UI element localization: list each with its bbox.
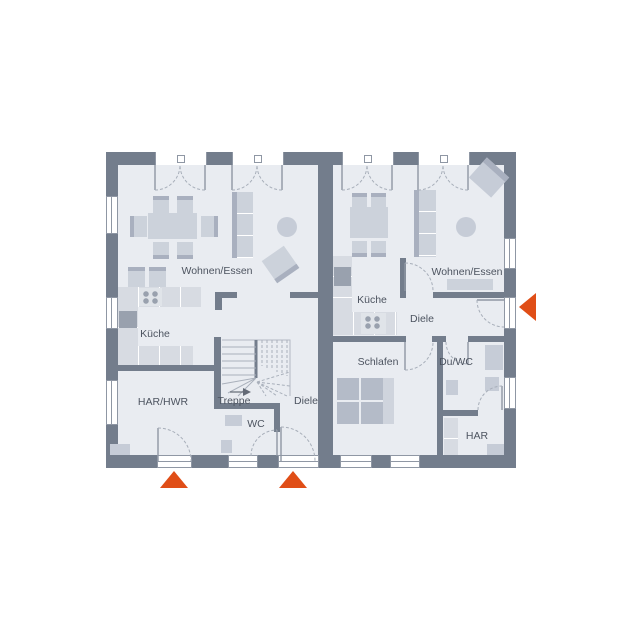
- chair: [371, 193, 386, 209]
- entry-door-opening: [278, 455, 319, 468]
- room-label-right-du-wc: Du/WC: [439, 356, 473, 368]
- interior-wall: [468, 336, 516, 342]
- french-door: [418, 152, 470, 165]
- window: [106, 196, 118, 234]
- stove: [361, 313, 386, 334]
- window: [390, 455, 420, 468]
- toilet: [221, 440, 232, 453]
- interior-wall: [274, 409, 280, 432]
- window: [106, 297, 118, 329]
- cabinet: [487, 444, 504, 455]
- interior-wall: [400, 258, 406, 298]
- stool: [128, 267, 145, 287]
- door-mullion: [440, 155, 448, 163]
- side-table: [277, 217, 297, 237]
- room-label-left-diele: Diele: [294, 395, 318, 407]
- interior-wall: [290, 292, 318, 298]
- entry-door-opening: [157, 455, 192, 468]
- dining-table: [350, 207, 388, 238]
- window: [106, 380, 118, 425]
- chair: [352, 241, 367, 257]
- french-door: [155, 152, 207, 165]
- room-label-right-har: HAR: [466, 430, 488, 442]
- chair: [177, 196, 193, 213]
- chair: [177, 242, 193, 259]
- chair: [201, 216, 218, 237]
- room-label-left-wohnen-essen: Wohnen/Essen: [181, 265, 252, 277]
- bed-foot: [383, 378, 394, 424]
- room-label-right-kueche: Küche: [357, 294, 387, 306]
- floor-plan: Wohnen/Essen Küche HAR/HWR Treppe Diele …: [0, 0, 636, 636]
- entrance-marker: [160, 471, 188, 488]
- kitchen-counter: [118, 346, 193, 365]
- shower: [485, 345, 503, 370]
- room-label-right-wohnen-essen: Wohnen/Essen: [431, 266, 502, 278]
- door-mullion: [364, 155, 372, 163]
- double-bed: [337, 378, 394, 424]
- room-label-left-har-hwr: HAR/HWR: [138, 396, 188, 408]
- chair: [153, 196, 169, 213]
- stove: [139, 288, 162, 306]
- shelf-unit: [414, 190, 436, 257]
- party-wall: [318, 152, 333, 468]
- entrance-marker: [279, 471, 307, 488]
- interior-wall: [333, 336, 406, 342]
- toilet: [446, 380, 458, 395]
- sink: [485, 377, 499, 391]
- door-mullion: [254, 155, 262, 163]
- window: [504, 238, 516, 269]
- room-label-left-treppe: Treppe: [218, 395, 251, 407]
- entry-door-opening: [504, 297, 516, 329]
- oven-appliance: [119, 311, 137, 328]
- shelf-unit: [232, 192, 253, 258]
- room-label-left-kueche: Küche: [140, 328, 170, 340]
- french-door: [232, 152, 284, 165]
- interior-wall: [106, 365, 214, 371]
- oven-appliance: [334, 267, 351, 286]
- french-door: [342, 152, 394, 165]
- door-mullion: [177, 155, 185, 163]
- interior-wall: [215, 292, 222, 310]
- chair: [352, 193, 367, 209]
- sideboard: [447, 279, 493, 290]
- room-label-left-wc: WC: [247, 418, 265, 430]
- chair: [130, 216, 147, 237]
- interior-wall: [443, 410, 478, 416]
- utility-appliance: [110, 444, 130, 455]
- cabinet: [444, 418, 458, 455]
- window: [228, 455, 258, 468]
- sink: [225, 415, 242, 426]
- chair: [153, 242, 169, 259]
- stool: [149, 267, 166, 287]
- chair: [371, 241, 386, 257]
- side-table: [456, 217, 476, 237]
- window: [340, 455, 372, 468]
- room-label-right-diele: Diele: [410, 313, 434, 325]
- room-label-right-schlafen: Schlafen: [358, 356, 399, 368]
- dining-table: [148, 213, 197, 239]
- window: [504, 377, 516, 409]
- entrance-marker: [519, 293, 536, 321]
